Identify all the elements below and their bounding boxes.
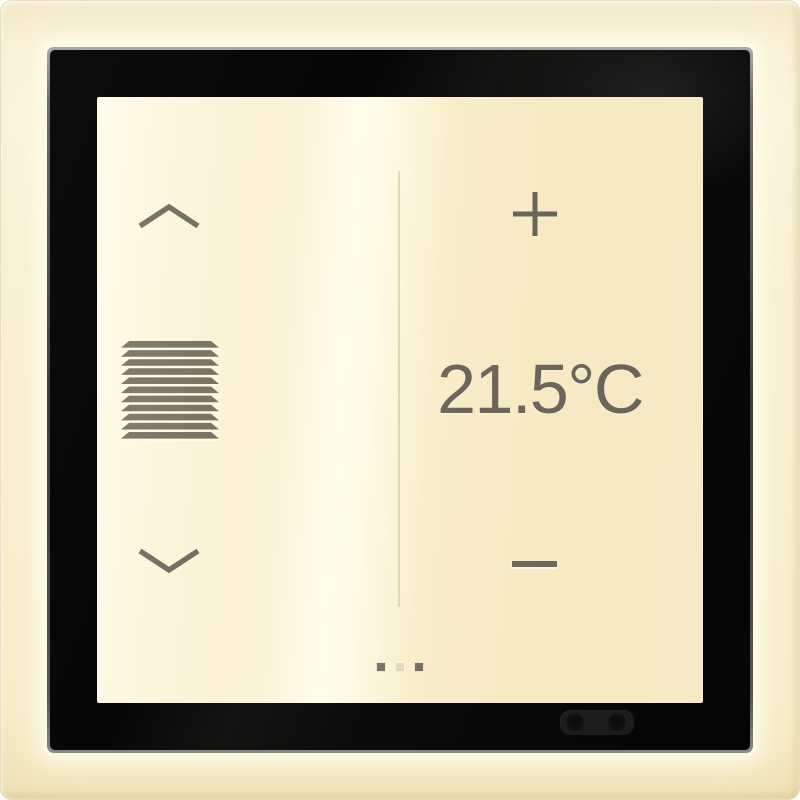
page-indicator[interactable] [376, 662, 424, 672]
temperature-control-zone[interactable]: 21.5°C [400, 97, 703, 703]
chevron-down-icon[interactable] [137, 547, 201, 575]
minus-icon[interactable] [512, 561, 557, 567]
page-dot[interactable] [376, 662, 386, 672]
touch-panel-device: 21.5°C [0, 0, 800, 800]
ir-sensor-icon [608, 713, 626, 731]
touchscreen[interactable]: 21.5°C [97, 97, 703, 703]
ir-sensor-icon [566, 713, 584, 731]
chevron-up-icon[interactable] [137, 202, 201, 230]
temperature-value: 21.5°C [400, 349, 680, 429]
blinds-shutter-icon[interactable] [121, 341, 219, 442]
page-background: 21.5°C [0, 0, 800, 800]
page-dot[interactable] [395, 662, 405, 672]
blinds-control-zone[interactable] [97, 97, 400, 703]
page-dot[interactable] [414, 662, 424, 672]
plus-icon[interactable] [511, 190, 559, 238]
proximity-sensor-window [560, 710, 634, 735]
